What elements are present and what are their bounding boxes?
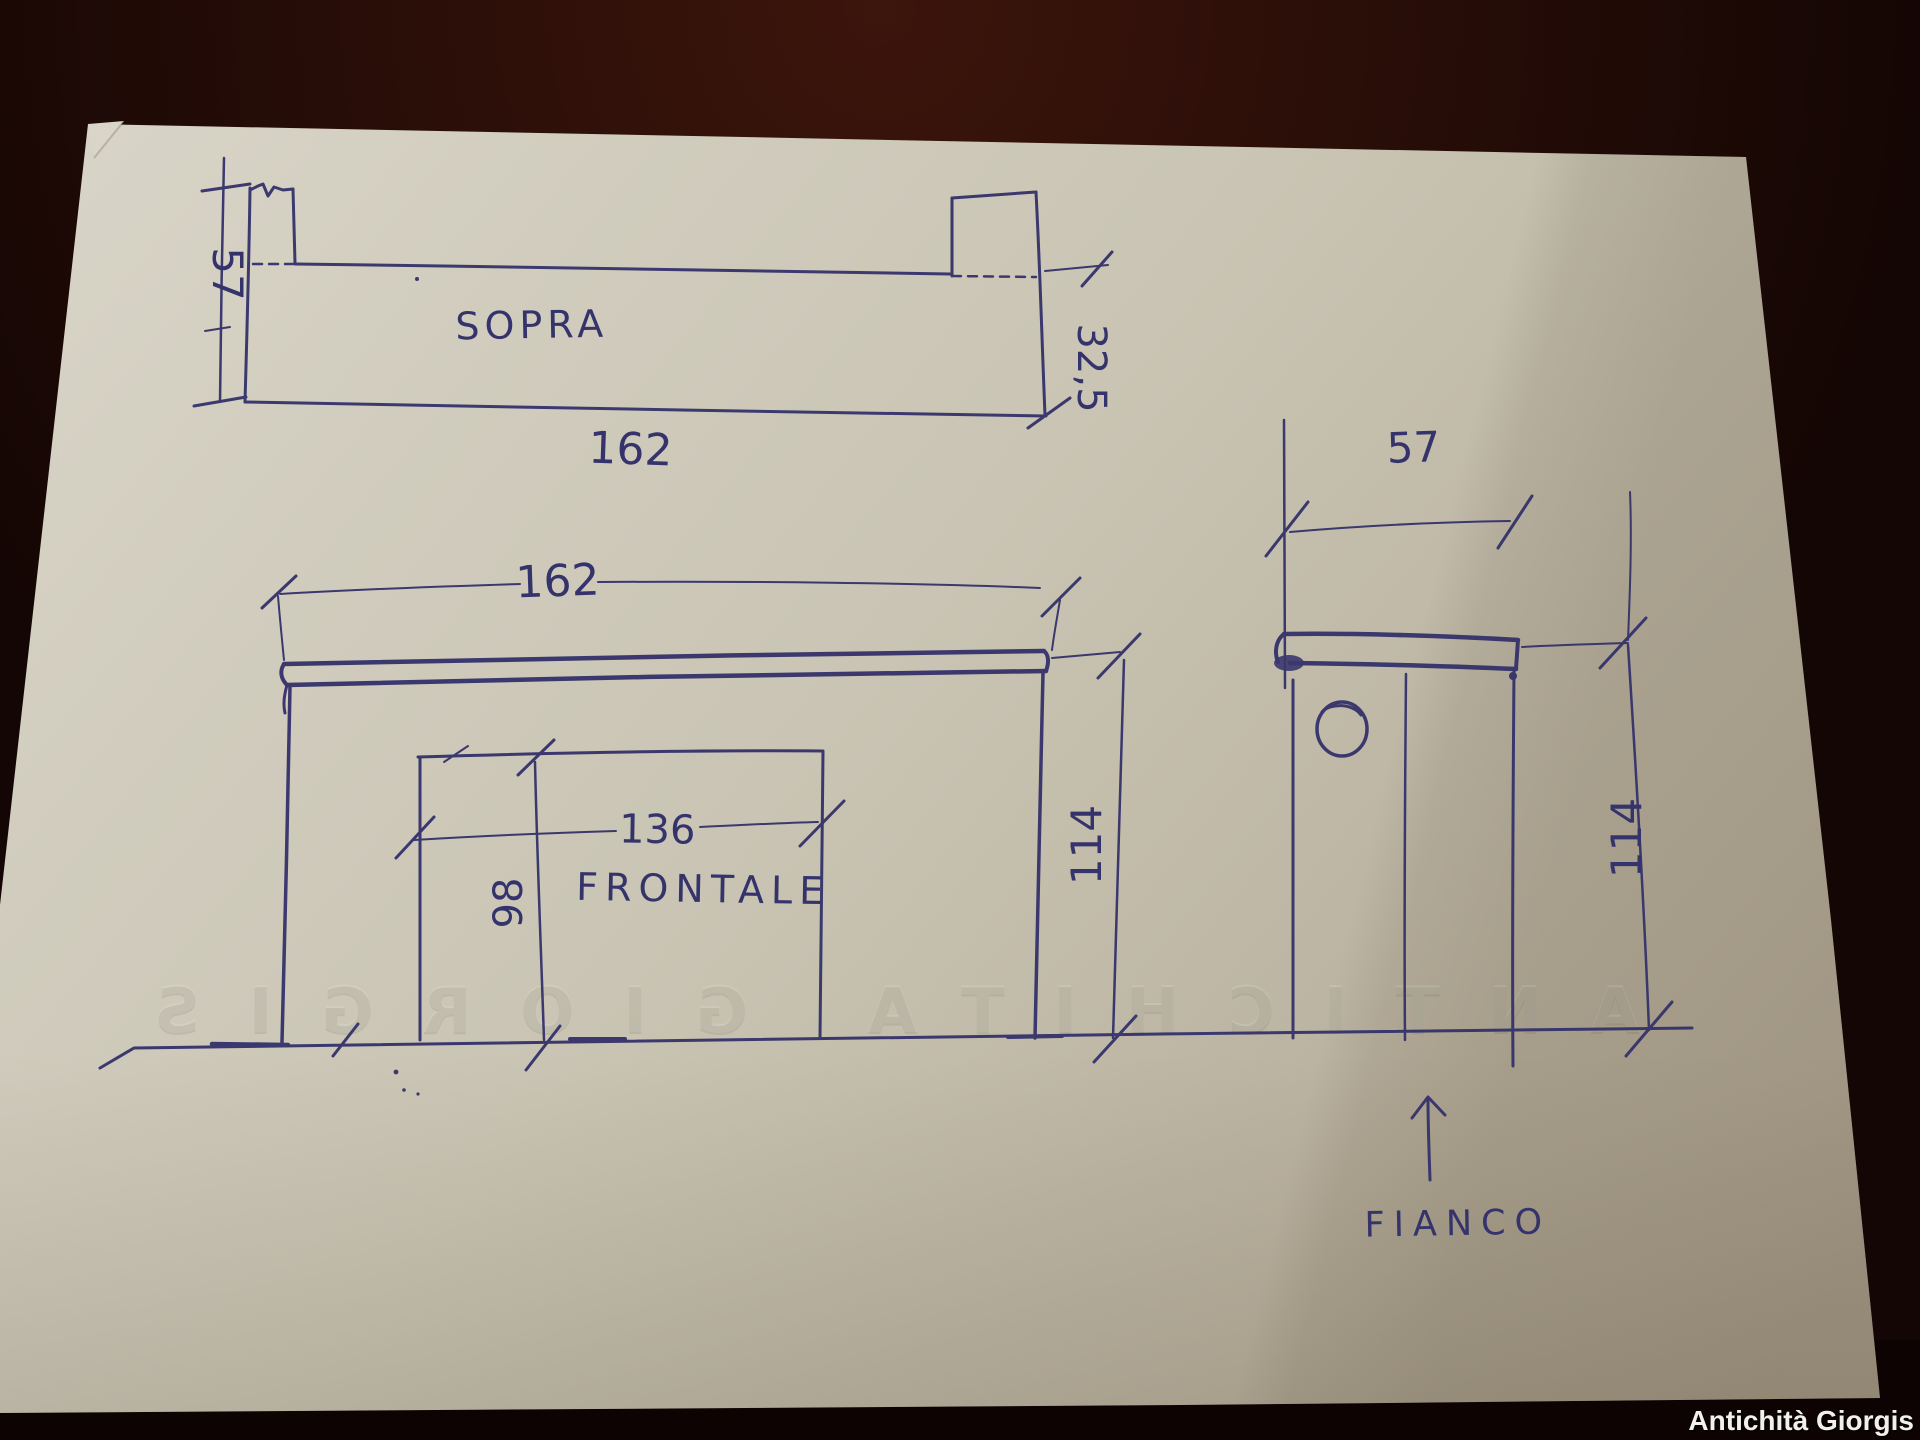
side-view-label: FIANCO: [1364, 1202, 1551, 1245]
photo-of-hand-drawn-sketch: ANTICHITA GIORGIS ANTICHITA GIORGIS: [0, 0, 1920, 1440]
dim-side-total-height: 114: [1602, 798, 1651, 878]
dim-front-total-height: 114: [1062, 805, 1111, 885]
sketch-canvas: ANTICHITA GIORGIS ANTICHITA GIORGIS: [0, 0, 1920, 1440]
dim-front-opening-height: 98: [486, 878, 532, 929]
dim-top-depth: 57: [203, 247, 252, 300]
dim-side-depth: 57: [1386, 422, 1441, 473]
dim-top-width: 162: [588, 423, 674, 477]
svg-text:Antichità Giorgis: Antichità Giorgis: [1688, 1405, 1914, 1436]
front-view-label: FRONTALE: [576, 865, 831, 913]
dim-top-shelf-depth: 32,5: [1068, 323, 1114, 412]
paper-sheet: [0, 121, 1880, 1413]
dim-front-width: 162: [515, 555, 601, 609]
top-view-label: SOPRA: [455, 302, 609, 349]
dim-front-opening-width: 136: [619, 806, 696, 853]
photo-credit: Antichità Giorgis Antichità Giorgis: [1688, 1405, 1916, 1438]
